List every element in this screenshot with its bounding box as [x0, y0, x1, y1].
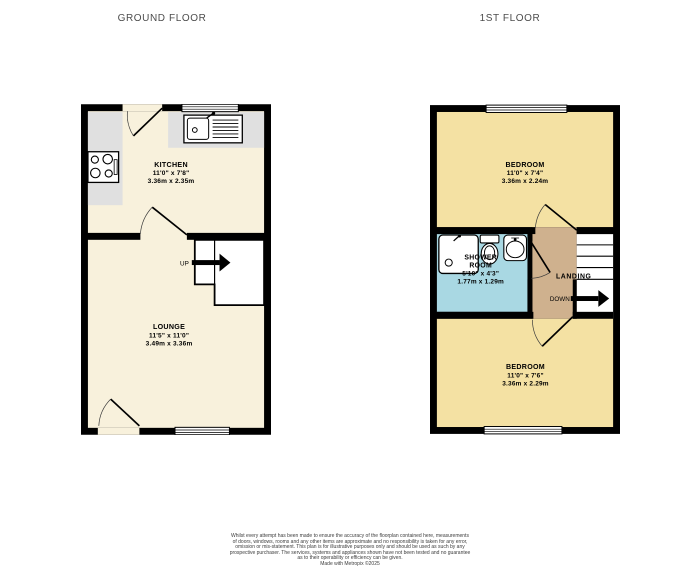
window	[182, 104, 238, 111]
bedroom-top-dims-metric: 3.36m x 2.24m	[502, 178, 549, 185]
back-door-opening	[123, 104, 163, 111]
lounge-dims-imperial: 11'5" x 11'0"	[149, 332, 189, 339]
bedroom-bottom-label: BEDROOM	[506, 363, 545, 371]
stair-direction-label: UP	[180, 261, 189, 268]
lounge-label: LOUNGE	[153, 323, 185, 331]
floorplan-page: GROUND FLOOR 1ST FLOOR	[0, 0, 700, 570]
shower-room-dims-imperial: 5'10" x 4'3"	[462, 270, 499, 277]
bedroom-top-label: BEDROOM	[505, 161, 544, 169]
window	[486, 105, 567, 112]
front-door-opening	[98, 428, 140, 435]
ground-floor-title: GROUND FLOOR	[62, 13, 262, 24]
first-floor-plan: BEDROOM 11'0" x 7'4" 3.36m x 2.24m SHOWE…	[430, 104, 620, 435]
ground-floor-plan: UP KITCHEN 11'0" x 7'8" 3.36m x 2.35m LO…	[81, 104, 271, 435]
sink-icon	[184, 112, 242, 143]
lounge-dims-metric: 3.49m x 3.36m	[146, 341, 193, 348]
kitchen-dims-imperial: 11'0" x 7'8"	[153, 170, 190, 177]
divider-wall	[81, 233, 140, 240]
landing-label: LANDING	[556, 273, 591, 280]
first-floor-title: 1ST FLOOR	[410, 13, 610, 24]
stair-direction-label: DOWN	[550, 296, 570, 303]
kitchen-label: KITCHEN	[154, 161, 188, 169]
bedroom-top-dims-imperial: 11'0" x 7'4"	[507, 170, 543, 177]
window	[484, 427, 562, 434]
window	[175, 427, 229, 434]
hob-icon	[88, 152, 119, 183]
shower-room-dims-metric: 1.77m x 1.29m	[457, 278, 504, 285]
basin-icon	[504, 235, 527, 261]
shower-room-label-1: SHOWER	[464, 255, 497, 262]
disclaimer-credit: Made with Metropix ©2025	[130, 562, 570, 568]
divider-wall	[187, 233, 271, 240]
bedroom-bottom-dims-metric: 3.36m x 2.29m	[502, 381, 549, 388]
bedroom-bottom-dims-imperial: 11'0" x 7'6"	[507, 372, 543, 379]
disclaimer: Whilst every attempt has been made to en…	[130, 534, 570, 568]
shower-room-label-2: ROOM	[469, 263, 492, 270]
kitchen-dims-metric: 3.36m x 2.35m	[148, 178, 195, 185]
